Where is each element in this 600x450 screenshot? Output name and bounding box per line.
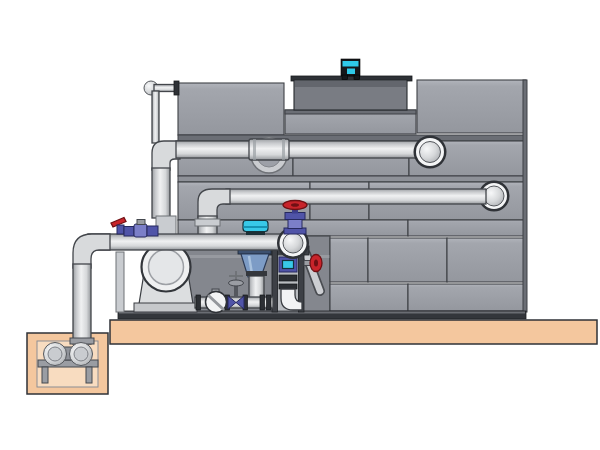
instrument-box	[279, 275, 297, 281]
tower-panel	[447, 238, 526, 282]
fan-motor-cap	[343, 61, 359, 67]
return-riser	[152, 168, 170, 218]
pump-stand-leg	[42, 367, 48, 383]
sump-pump-motor-face	[48, 347, 62, 361]
actuated-valve	[243, 221, 268, 236]
pipe-flange	[260, 295, 265, 310]
pipe-flange	[267, 295, 272, 310]
concrete-slab	[110, 320, 597, 344]
fan-motor-leg-left	[342, 75, 348, 80]
drop-pipe-flange	[246, 271, 267, 276]
tower-panel	[408, 284, 526, 311]
lever-valve-body	[117, 225, 124, 234]
pump-discharge-pipe	[88, 234, 282, 250]
globe-valve	[283, 201, 307, 235]
tower-panel	[408, 220, 526, 236]
tower-recessed-edge	[285, 110, 416, 114]
actuator-seam	[244, 226, 268, 228]
equalizer-riser	[152, 91, 159, 143]
technical-illustration: Industrial cooling tower with circulatio…	[0, 0, 600, 450]
fan-motor-leg-right	[354, 75, 360, 80]
pump-stand-leg	[86, 367, 92, 383]
return-ball-elbow	[420, 142, 441, 163]
riser-socket	[156, 216, 176, 236]
side-handwheel-hub	[314, 260, 318, 267]
sump-pump-volute-face	[74, 347, 88, 361]
instrument-box	[279, 284, 297, 289]
tower-right-edge	[523, 80, 527, 312]
fan-motor-window	[347, 69, 355, 75]
suction-elbow	[73, 234, 110, 268]
pump-inlet-ring	[149, 250, 184, 285]
tower-panel	[368, 238, 447, 282]
manifold-valve	[147, 226, 158, 236]
solenoid-valve-label	[283, 261, 294, 269]
manifold-valve	[134, 224, 147, 237]
tower-top-panel-right	[417, 80, 526, 133]
sump-pit	[27, 333, 108, 394]
tower-top-band	[178, 135, 526, 141]
manifold-cap	[137, 220, 145, 225]
globe-valve-hub	[291, 203, 299, 207]
tower-seam-band	[178, 176, 526, 182]
gate-valve-handwheel	[229, 280, 244, 286]
tower-panel	[330, 284, 408, 311]
tower-panel	[330, 238, 368, 282]
tower-top-panel-left	[178, 83, 284, 135]
equalizer-flange	[174, 81, 179, 95]
coupling-ring	[282, 139, 285, 160]
blue-valve-manifold	[111, 218, 158, 238]
supply-pipe	[226, 189, 486, 204]
pump-plinth	[134, 303, 197, 312]
discharge-ball-elbow	[283, 233, 303, 253]
fan-cowl-shade	[295, 81, 406, 87]
suction-riser	[73, 264, 91, 344]
supply-riser-collar	[195, 219, 220, 226]
supply-ball-elbow	[484, 186, 504, 206]
pipe-flange	[196, 295, 201, 310]
skid-support-column	[116, 252, 124, 312]
coupling-ring	[253, 139, 256, 160]
return-pipe	[176, 141, 428, 158]
globe-valve-bonnet	[285, 213, 305, 220]
manifold-valve	[124, 227, 134, 237]
illustration-canvas: Industrial cooling tower with circulatio…	[0, 0, 600, 450]
